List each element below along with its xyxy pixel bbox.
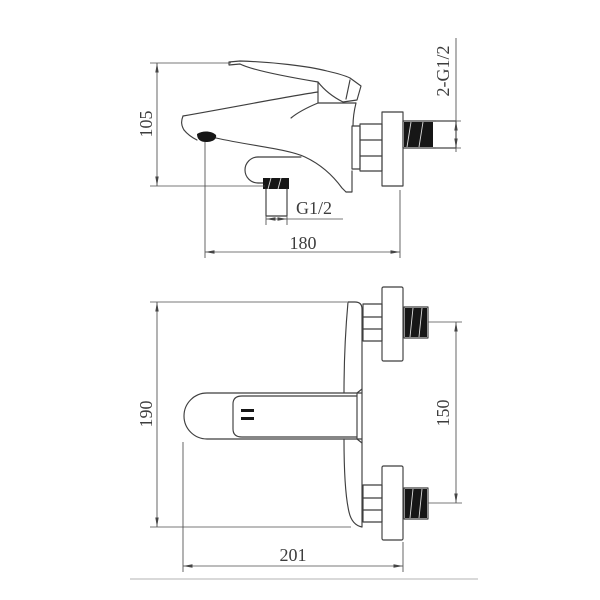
plan-view-drawing: 190 150 201	[136, 287, 462, 572]
dim-label-150: 150	[433, 400, 453, 427]
wall-mount-side	[352, 112, 456, 186]
spout-outlet	[197, 131, 216, 142]
faucet-body-plan	[344, 302, 362, 527]
wall-flange-side	[382, 112, 403, 186]
handle-marking	[241, 409, 254, 412]
faucet-technical-drawing-page: 105 180 G1/2 2-G1/2	[0, 0, 600, 600]
dimension-2-g12-inlets: 2-G1/2	[433, 38, 461, 152]
dimension-150: 150	[428, 322, 462, 503]
hex-nut-plan	[363, 304, 382, 341]
outlet-thread-band	[263, 178, 289, 189]
dim-label-g12: G1/2	[296, 198, 332, 218]
dim-label-105: 105	[136, 111, 156, 138]
wall-flange-plan	[382, 466, 403, 540]
faucet-body-side	[182, 82, 356, 192]
dimension-g12-outlet: G1/2	[266, 198, 343, 225]
dim-label-180: 180	[290, 233, 317, 253]
handle-marking	[241, 417, 254, 420]
hex-nut-plan	[363, 485, 382, 522]
inlet-thread-band	[404, 122, 433, 147]
dim-label-201: 201	[280, 545, 307, 565]
dimension-190: 190	[136, 302, 351, 527]
wall-mount-plan-bottom	[363, 466, 428, 540]
hex-nut-side	[360, 124, 382, 171]
faucet-handle-plan	[184, 389, 362, 443]
wall-flange-plan	[382, 287, 403, 361]
dimension-201: 201	[183, 442, 403, 572]
dim-label-190: 190	[136, 401, 156, 428]
technical-drawing-canvas: 105 180 G1/2 2-G1/2	[0, 0, 600, 600]
side-view-drawing: 105 180 G1/2 2-G1/2	[136, 38, 461, 258]
dim-label-2-g12: 2-G1/2	[433, 46, 453, 97]
wall-mount-plan-top	[363, 287, 428, 361]
diverter-outlet-side	[245, 157, 301, 216]
